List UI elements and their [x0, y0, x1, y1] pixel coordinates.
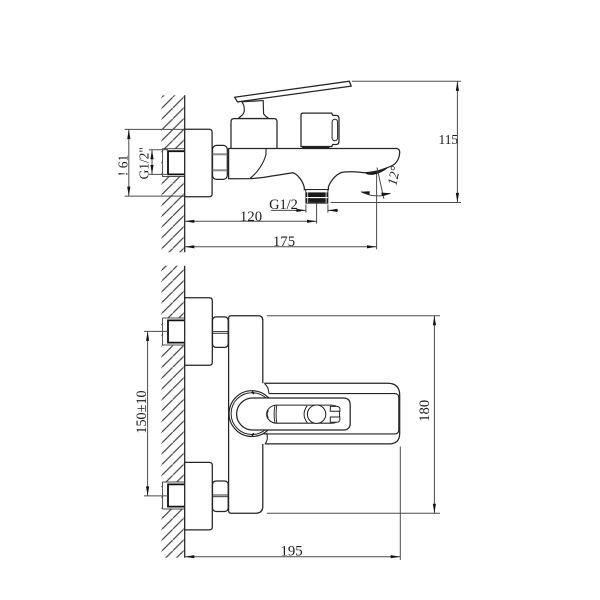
- svg-text:175: 175: [273, 234, 295, 250]
- svg-text:180: 180: [417, 400, 433, 422]
- svg-text:115: 115: [439, 132, 459, 147]
- svg-text:150±10: 150±10: [134, 390, 150, 433]
- svg-text:120: 120: [240, 209, 262, 225]
- svg-text:195: 195: [280, 543, 302, 559]
- svg-text:! 61: ! 61: [116, 155, 131, 177]
- svg-text:G1/2": G1/2": [136, 147, 151, 179]
- svg-text:G1/2: G1/2: [269, 197, 298, 213]
